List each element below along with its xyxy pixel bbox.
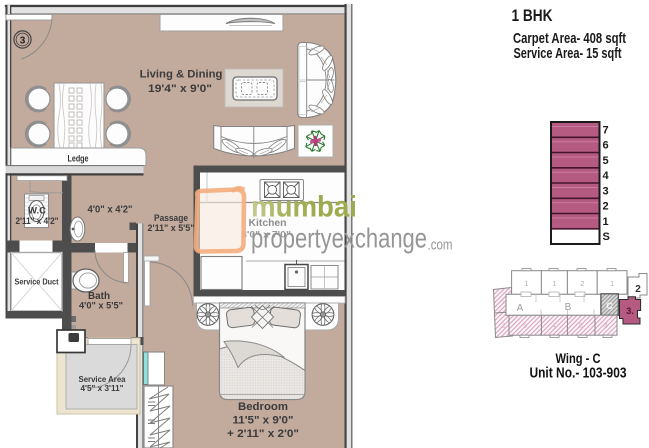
svg-text:4: 4 (604, 323, 608, 330)
svg-text:1: 1 (552, 279, 556, 288)
svg-text:4'0" x 5'5": 4'0" x 5'5" (79, 300, 123, 311)
svg-text:Unit No.- 103-903: Unit No.- 103-903 (530, 366, 627, 382)
svg-text:S: S (603, 231, 610, 243)
svg-text:B: B (565, 302, 572, 313)
svg-text:1: 1 (502, 323, 506, 330)
svg-text:Ledge: Ledge (68, 153, 89, 163)
svg-text:3.: 3. (626, 306, 634, 316)
svg-text:5: 5 (523, 323, 527, 330)
svg-text:Service Duct: Service Duct (15, 278, 59, 287)
svg-text:7: 7 (603, 124, 609, 136)
svg-text:6: 6 (603, 140, 609, 152)
svg-text:C: C (606, 301, 613, 311)
svg-text:5: 5 (603, 155, 609, 167)
svg-text:1 BHK: 1 BHK (512, 6, 554, 25)
svg-text:+ 2'11" x 2'0": + 2'11" x 2'0" (227, 428, 299, 440)
svg-text:Service Area- 15 sqft: Service Area- 15 sqft (514, 45, 622, 62)
svg-text:2'11" x 5'5": 2'11" x 5'5" (148, 223, 195, 233)
svg-text:4: 4 (552, 323, 556, 330)
svg-text:5: 5 (579, 323, 583, 330)
svg-text:Wing - C: Wing - C (556, 350, 601, 366)
svg-text:propertyexchange: propertyexchange (251, 223, 427, 254)
svg-text:mumbai: mumbai (251, 191, 357, 224)
svg-text:2: 2 (635, 284, 641, 295)
svg-text:2: 2 (603, 201, 609, 213)
svg-text:2'11" x 4'2": 2'11" x 4'2" (16, 216, 59, 226)
svg-text:4: 4 (603, 170, 610, 182)
svg-text:4'0" x 4'2": 4'0" x 4'2" (88, 204, 133, 216)
svg-text:19'4" x 9'0": 19'4" x 9'0" (148, 83, 212, 95)
svg-text:Bedroom: Bedroom (238, 401, 288, 413)
svg-text:Service Area: Service Area (79, 375, 126, 384)
svg-text:3: 3 (20, 35, 26, 46)
svg-text:1: 1 (610, 279, 614, 288)
svg-text:1: 1 (603, 216, 609, 228)
svg-text:1: 1 (524, 279, 528, 288)
svg-text:4'5" x 3'11": 4'5" x 3'11" (81, 384, 124, 393)
svg-text:1: 1 (501, 299, 505, 306)
svg-text:2: 2 (580, 279, 584, 288)
svg-text:3: 3 (603, 185, 609, 197)
svg-text:A: A (517, 303, 524, 314)
svg-text:.com: .com (428, 237, 453, 254)
svg-text:11'5" x 9'0": 11'5" x 9'0" (233, 415, 294, 427)
svg-text:W.C: W.C (28, 206, 46, 217)
svg-text:Living & Dining: Living & Dining (140, 69, 223, 81)
